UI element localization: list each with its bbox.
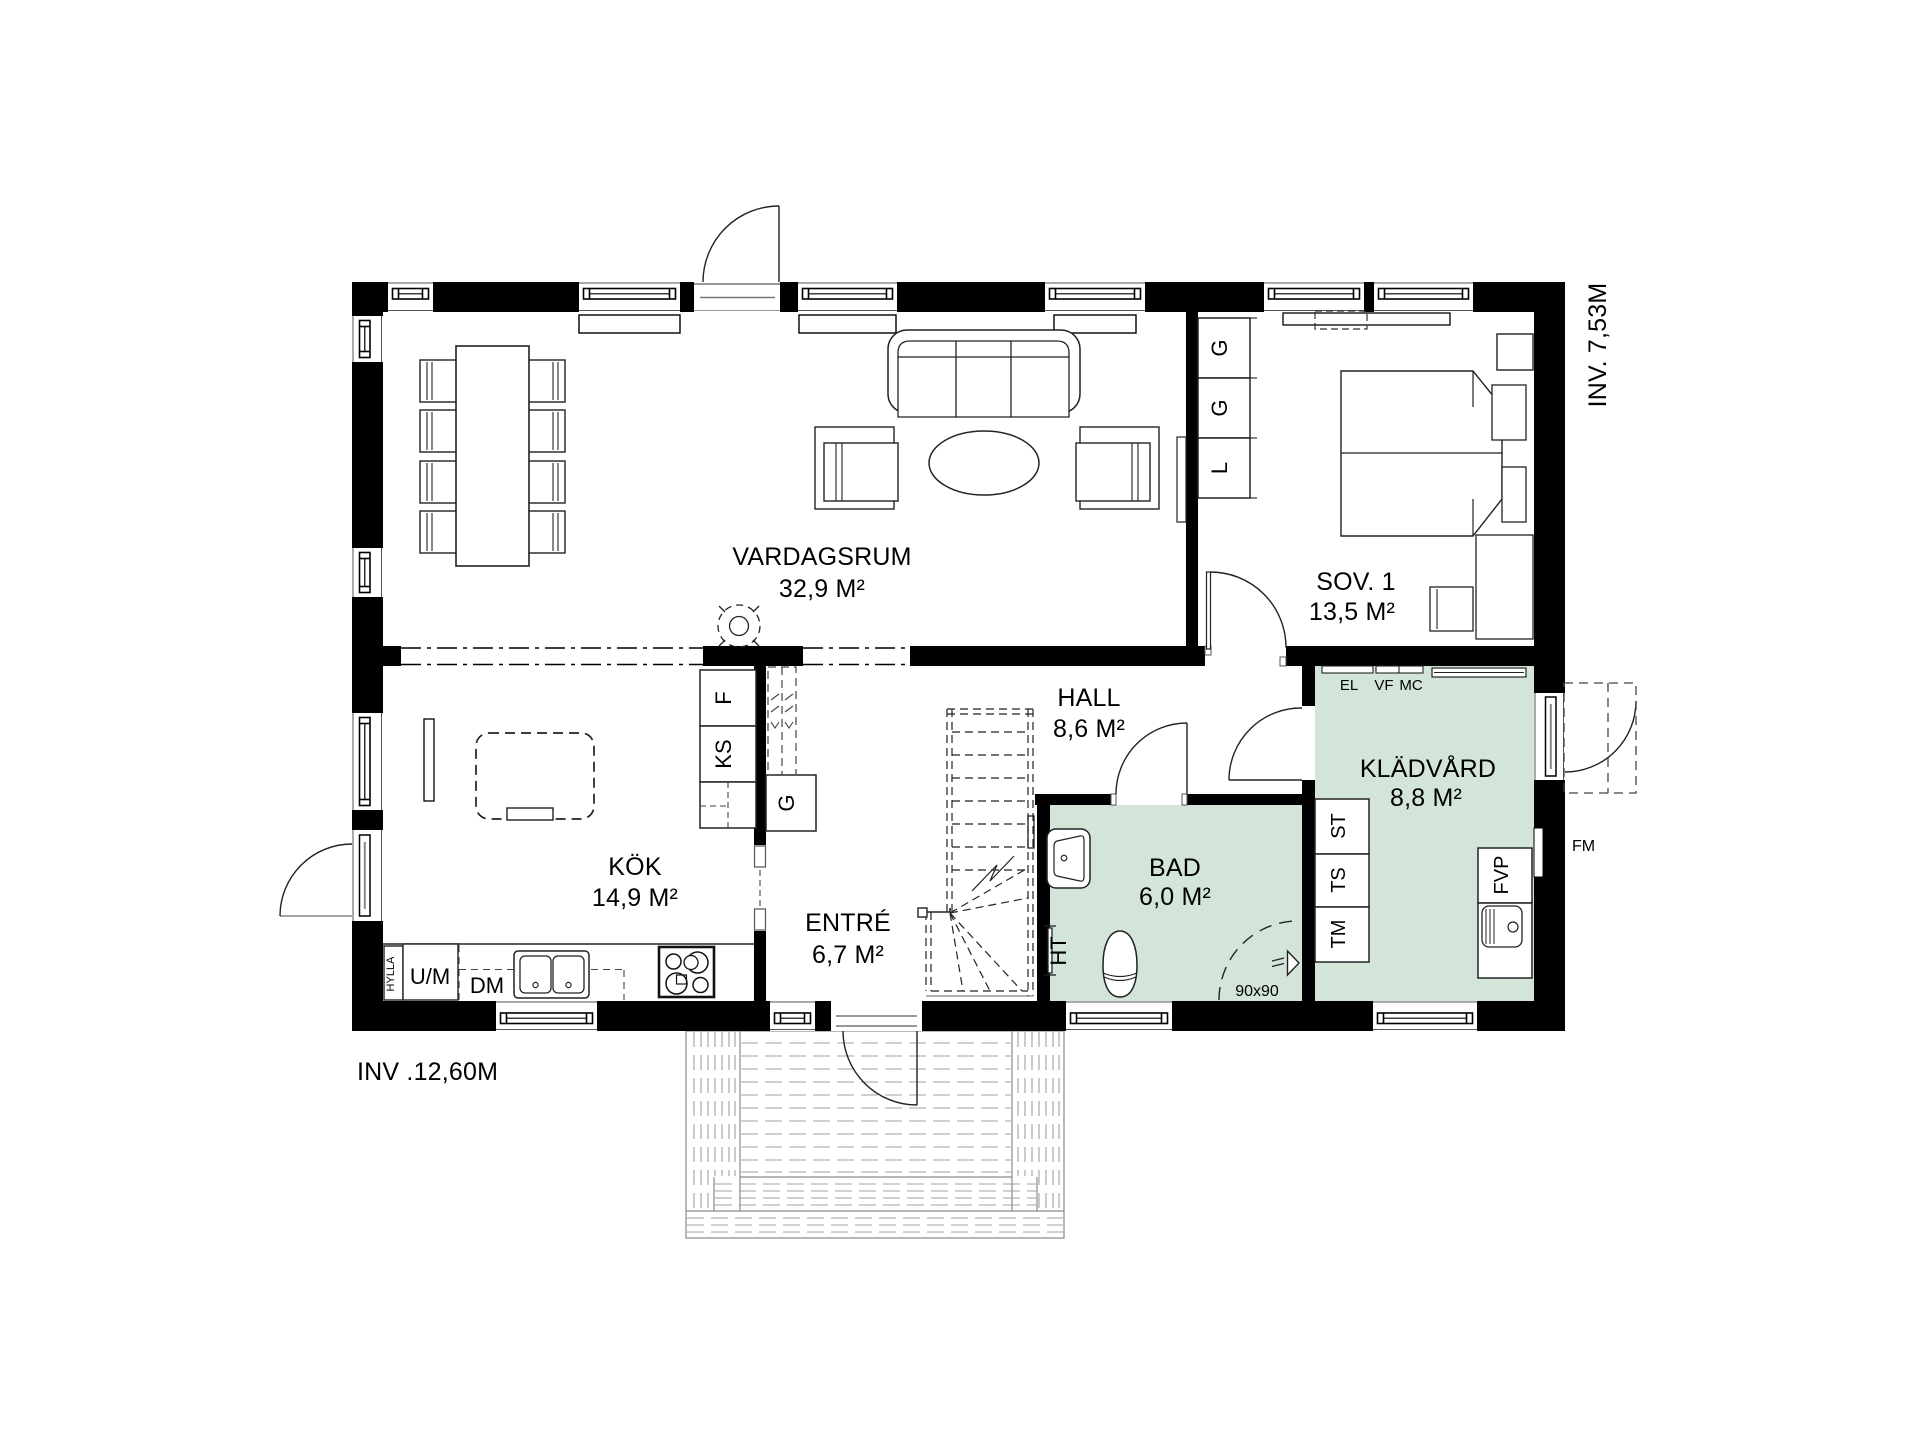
svg-text:EL: EL [1340, 677, 1358, 694]
svg-text:HALL: HALL [1057, 684, 1120, 712]
svg-text:INV .12,60M: INV .12,60M [357, 1058, 498, 1086]
svg-text:14,9 M²: 14,9 M² [592, 884, 678, 912]
svg-text:KLÄDVÅRD: KLÄDVÅRD [1360, 753, 1496, 783]
svg-text:U/M: U/M [410, 964, 450, 989]
svg-text:13,5 M²: 13,5 M² [1309, 598, 1395, 626]
svg-text:FM: FM [1572, 838, 1595, 855]
svg-text:F: F [711, 691, 736, 704]
svg-text:90x90: 90x90 [1235, 983, 1279, 1000]
svg-text:INV. 7,53M: INV. 7,53M [1584, 283, 1612, 408]
svg-text:6,7 M²: 6,7 M² [812, 941, 884, 969]
svg-text:SOV. 1: SOV. 1 [1316, 568, 1396, 596]
svg-text:TS: TS [1328, 867, 1350, 893]
svg-text:BAD: BAD [1149, 854, 1201, 882]
svg-text:6,0 M²: 6,0 M² [1139, 883, 1211, 911]
svg-text:MC: MC [1399, 677, 1422, 694]
svg-text:DM: DM [470, 973, 504, 998]
svg-text:G: G [774, 794, 799, 811]
svg-text:HT: HT [1046, 936, 1071, 965]
svg-text:G: G [1207, 339, 1232, 356]
svg-text:ENTRÉ: ENTRÉ [805, 908, 891, 937]
svg-text:KS: KS [711, 739, 736, 768]
svg-text:G: G [1207, 399, 1232, 416]
svg-text:L: L [1207, 462, 1232, 474]
svg-text:HYLLA: HYLLA [385, 956, 397, 992]
svg-text:8,6 M²: 8,6 M² [1053, 715, 1125, 743]
svg-text:KÖK: KÖK [608, 853, 662, 881]
svg-text:FVP: FVP [1491, 856, 1513, 895]
svg-text:VF: VF [1374, 677, 1393, 694]
svg-text:32,9 M²: 32,9 M² [779, 575, 865, 603]
svg-text:ST: ST [1328, 813, 1350, 839]
svg-text:VARDAGSRUM: VARDAGSRUM [732, 543, 911, 571]
svg-text:8,8 M²: 8,8 M² [1390, 784, 1462, 812]
svg-text:TM: TM [1328, 920, 1350, 949]
